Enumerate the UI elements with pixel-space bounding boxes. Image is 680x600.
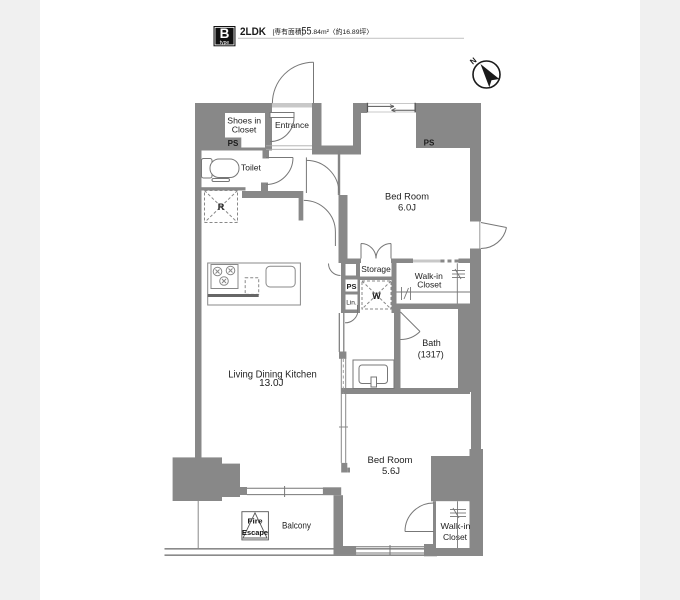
svg-text:Entrance: Entrance	[275, 120, 309, 130]
svg-text:PS: PS	[346, 282, 356, 291]
svg-text:Lin.: Lin.	[346, 300, 357, 307]
svg-text:W: W	[372, 291, 381, 301]
svg-text:Walk-in: Walk-in	[441, 521, 471, 531]
svg-text:Closet: Closet	[443, 532, 468, 542]
svg-text:55: 55	[302, 25, 312, 37]
svg-text:6.0J: 6.0J	[398, 203, 416, 214]
svg-text:Escape: Escape	[242, 530, 268, 537]
svg-text:(1317): (1317)	[418, 349, 444, 359]
svg-text:R: R	[218, 202, 225, 212]
svg-text:Closet: Closet	[417, 280, 442, 290]
svg-text:Toilet: Toilet	[241, 162, 261, 172]
svg-text:13.0J: 13.0J	[259, 378, 283, 389]
svg-text:PS: PS	[228, 139, 239, 148]
svg-text:Bed Room: Bed Room	[385, 192, 429, 203]
svg-text:5.6J: 5.6J	[382, 466, 400, 477]
svg-text:Balcony: Balcony	[282, 521, 311, 531]
svg-text:.84m²〈約16.89坪〉: .84m²〈約16.89坪〉	[312, 27, 374, 36]
svg-text:2LDK: 2LDK	[240, 26, 266, 38]
svg-text:type: type	[220, 40, 230, 46]
svg-text:Storage: Storage	[361, 264, 391, 274]
svg-text:Bed Room: Bed Room	[368, 455, 413, 466]
svg-text:Fire: Fire	[248, 519, 263, 526]
svg-text:[専有面積]: [専有面積]	[273, 27, 304, 36]
svg-text:PS: PS	[424, 139, 435, 148]
svg-text:Bath: Bath	[422, 338, 441, 348]
svg-text:Closet: Closet	[232, 124, 257, 134]
